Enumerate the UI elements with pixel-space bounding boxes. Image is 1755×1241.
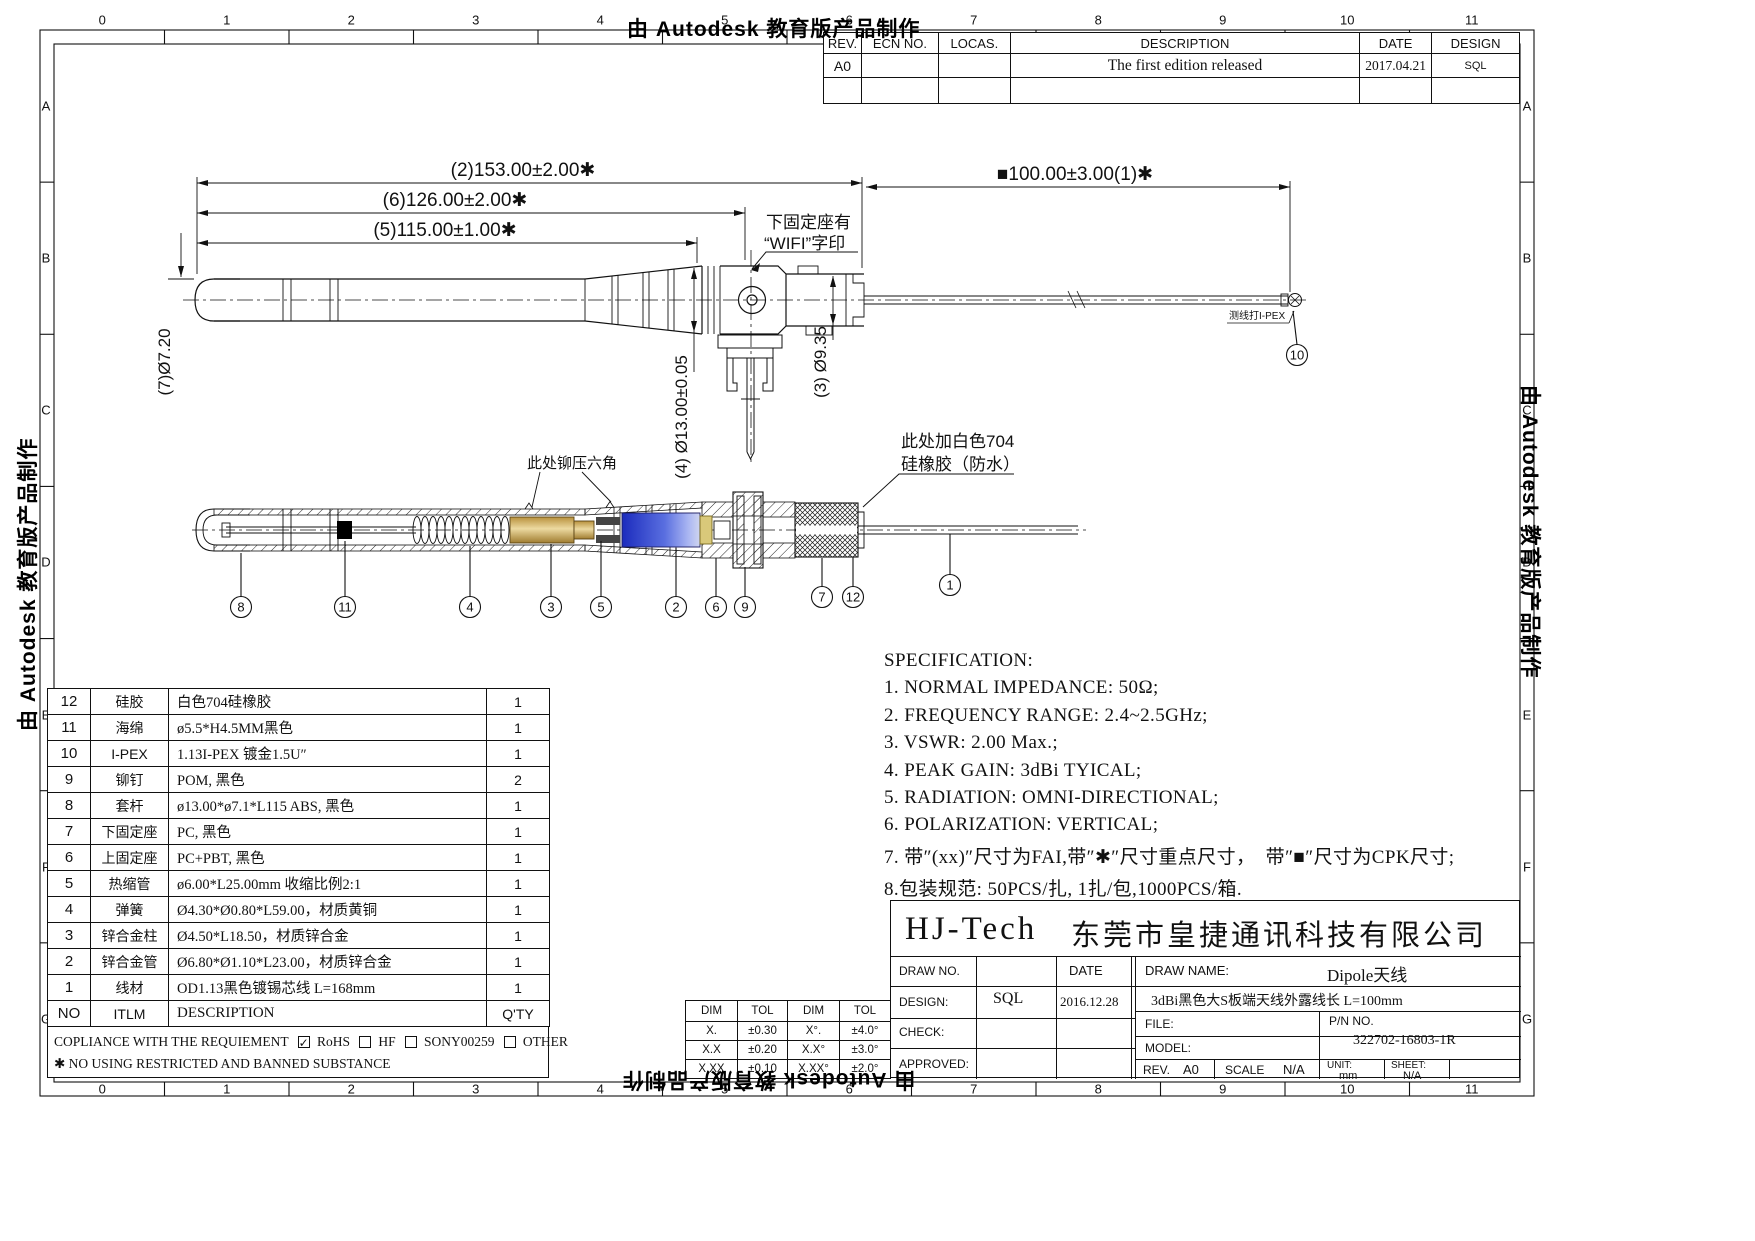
autodesk-watermark-top: 由 Autodesk 教育版产品制作: [627, 13, 920, 43]
unit-value: mm: [1339, 1070, 1357, 1082]
bom-no: 8: [48, 793, 91, 819]
part-balloons: 811435269712110: [231, 311, 1308, 618]
date-label: DATE: [1069, 963, 1103, 978]
compliance-option-label: HF: [375, 1034, 396, 1049]
tolerance-cell: ±4.0°: [840, 1022, 891, 1041]
bom-qty: 1: [487, 715, 550, 741]
draw-name-label: DRAW NAME:: [1145, 963, 1229, 978]
rev-value: A0: [1183, 1062, 1199, 1077]
design-date: 2016.12.28: [1060, 994, 1119, 1010]
bom-row: 3锌合金柱Ø4.50*L18.50，材质锌合金1: [48, 923, 550, 949]
revision-header-cell: DATE: [1360, 33, 1432, 54]
dimension-annotations: (2)153.00±2.00✱ (6)126.00±2.00✱ (5)115.0…: [155, 160, 1290, 479]
bom-description: 白色704硅橡胶: [169, 689, 487, 715]
zinc-tube-section: [622, 513, 700, 547]
bom-description: PC+PBT, 黑色: [169, 845, 487, 871]
grid-column-label: 8: [1095, 1082, 1102, 1097]
grid-column-label: 10: [1340, 1082, 1354, 1097]
draw-name-sub: 3dBi黑色大S板端天线外露线长 L=100mm: [1151, 990, 1403, 1010]
bom-no: 2: [48, 949, 91, 975]
bom-qty: 1: [487, 949, 550, 975]
bom-item: 热缩管: [91, 871, 169, 897]
bom-item: 锌合金柱: [91, 923, 169, 949]
tolerance-header-cell: DIM: [686, 1001, 738, 1022]
revision-row-empty: [824, 78, 1520, 104]
bom-description: ø5.5*H4.5MM黑色: [169, 715, 487, 741]
bom-item: 硅胶: [91, 689, 169, 715]
spec-line: 2. FREQUENCY RANGE: 2.4~2.5GHz;: [884, 705, 1454, 727]
grid-column-label: 2: [348, 1082, 355, 1097]
spec-line: 7. 带″(xx)″尺寸为FAI,带″✱″尺寸重点尺寸， 带″■″尺寸为CPK尺…: [884, 842, 1454, 869]
tolerance-cell: X°.: [788, 1022, 840, 1041]
bom-qty: 2: [487, 767, 550, 793]
compliance-note: ✱ NO USING RESTRICTED AND BANNED SUBSTAN…: [54, 1054, 548, 1076]
bom-row: 7下固定座PC, 黑色1: [48, 819, 550, 845]
spec-line: 6. POLARIZATION: VERTICAL;: [884, 814, 1454, 836]
bom-no: 5: [48, 871, 91, 897]
scale-value: N/A: [1283, 1062, 1305, 1077]
part-balloon-number: 12: [846, 590, 860, 605]
tolerance-cell: X.X: [686, 1041, 738, 1060]
dim-9-35-label: (3) Ø9.35: [811, 326, 830, 398]
scale-label: SCALE: [1225, 1063, 1264, 1077]
grid-column-label: 7: [970, 1082, 977, 1097]
part-balloon-number: 6: [712, 600, 719, 615]
bom-row: 2锌合金管Ø6.80*Ø1.10*L23.00，材质锌合金1: [48, 949, 550, 975]
compliance-checkbox-sony00259: [405, 1036, 417, 1048]
dim-153-label: (2)153.00±2.00✱: [451, 160, 596, 181]
bom-row: 4弹簧Ø4.30*Ø0.80*L59.00，材质黄铜1: [48, 897, 550, 923]
compliance-checkbox-other: [504, 1036, 516, 1048]
part-balloon-number: 5: [597, 600, 604, 615]
title-block: HJ-Tech 东莞市皇捷通讯科技有限公司 DRAW NO. DATE DESI…: [890, 900, 1520, 1078]
grid-column-label: 2: [348, 13, 355, 28]
grid-row-label: G: [1522, 1011, 1532, 1026]
check-label: CHECK:: [899, 1025, 944, 1039]
rev-label: REV.: [1143, 1063, 1170, 1077]
dim-115-label: (5)115.00±1.00✱: [373, 220, 516, 241]
compliance-line: COPLIANCE WITH THE REQUIEMENT RoHS HF SO…: [54, 1032, 548, 1054]
spec-line: 4. PEAK GAIN: 3dBi TYICAL;: [884, 760, 1454, 782]
grid-column-label: 7: [970, 13, 977, 28]
part-balloon-number: 8: [237, 600, 244, 615]
bom-qty: 1: [487, 793, 550, 819]
bom-description: 1.13I-PEX 镀金1.5U″: [169, 741, 487, 767]
spec-line: 1. NORMAL IMPEDANCE: 50Ω;: [884, 677, 1454, 699]
part-balloon-number: 2: [672, 600, 679, 615]
tolerance-header-cell: TOL: [738, 1001, 788, 1022]
bom-description: Ø6.80*Ø1.10*L23.00，材质锌合金: [169, 949, 487, 975]
part-balloon-number: 7: [818, 590, 825, 605]
autodesk-watermark-right: 由 Autodesk 教育版产品制作: [1516, 385, 1546, 678]
autodesk-watermark-left: 由 Autodesk 教育版产品制作: [12, 438, 42, 731]
design-label: DESIGN:: [899, 995, 948, 1009]
tolerance-header-cell: TOL: [840, 1001, 891, 1022]
bom-qty: 1: [487, 923, 550, 949]
bom-item: 线材: [91, 975, 169, 1001]
grid-column-label: 1: [223, 13, 230, 28]
rivet-section: [754, 496, 761, 564]
bom-qty: 1: [487, 871, 550, 897]
revision-cell: [861, 54, 938, 78]
bom-no: 4: [48, 897, 91, 923]
grid-row-label: C: [41, 403, 50, 418]
revision-cell: [938, 54, 1010, 78]
drawing-sheet: (2)153.00±2.00✱ (6)126.00±2.00✱ (5)115.0…: [0, 0, 1755, 1241]
part-balloon-number: 10: [1290, 348, 1304, 363]
compliance-prefix: COPLIANCE WITH THE REQUIEMENT: [54, 1034, 289, 1049]
sheet-value: N/A: [1403, 1070, 1421, 1082]
dim-7-20-label: (7)Ø7.20: [155, 328, 174, 395]
tolerance-cell: X.: [686, 1022, 738, 1041]
bom-no: 7: [48, 819, 91, 845]
bom-description: Ø4.30*Ø0.80*L59.00，材质黄铜: [169, 897, 487, 923]
bom-no: 10: [48, 741, 91, 767]
grid-column-label: 4: [597, 13, 604, 28]
compliance-checkbox-rohs: [298, 1036, 310, 1048]
revision-row: A0The first edition released2017.04.21SQ…: [824, 54, 1520, 78]
tolerance-cell: ±0.30: [738, 1022, 788, 1041]
specification-title: SPECIFICATION:: [884, 650, 1454, 672]
dim-126-label: (6)126.00±2.00✱: [383, 190, 528, 211]
bom-item: I-PEX: [91, 741, 169, 767]
revision-header-cell: DESIGN: [1432, 33, 1520, 54]
mount-clip: [718, 335, 782, 348]
spec-line: 3. VSWR: 2.00 Max.;: [884, 732, 1454, 754]
bom-item: 锌合金管: [91, 949, 169, 975]
bom-qty: 1: [487, 741, 550, 767]
bom-header-row: NOITLMDESCRIPTIONQ'TY: [48, 1001, 550, 1027]
bom-qty: 1: [487, 819, 550, 845]
bom-item: 下固定座: [91, 819, 169, 845]
bom-item: 弹簧: [91, 897, 169, 923]
bom-row: 12硅胶白色704硅橡胶1: [48, 689, 550, 715]
bom-row: 8套杆ø13.00*ø7.1*L115 ABS, 黑色1: [48, 793, 550, 819]
grid-row-label: A: [1523, 99, 1532, 114]
grid-column-label: 1: [223, 1082, 230, 1097]
compliance-checkbox-hf: [359, 1036, 371, 1048]
bom-no: 9: [48, 767, 91, 793]
grid-column-label: 10: [1340, 13, 1354, 28]
grid-column-label: 9: [1219, 13, 1226, 28]
grid-column-label: 0: [99, 1082, 106, 1097]
bom-row: 9铆钉POM, 黑色2: [48, 767, 550, 793]
part-balloon-number: 3: [547, 600, 554, 615]
company-logo: HJ-Tech: [905, 911, 1037, 948]
hex-crimp-note: 此处铆压六角: [527, 455, 617, 472]
bom-description: Ø4.50*L18.50，材质锌合金: [169, 923, 487, 949]
file-label: FILE:: [1145, 1017, 1174, 1031]
spec-line: 5. RADIATION: OMNI-DIRECTIONAL;: [884, 787, 1454, 809]
grid-column-label: 3: [472, 1082, 479, 1097]
part-balloon-number: 1: [946, 578, 953, 593]
bom-row: 1线材OD1.13黑色镀锡芯线 L=168mm1: [48, 975, 550, 1001]
bom-description: OD1.13黑色镀锡芯线 L=168mm: [169, 975, 487, 1001]
grid-row-label: D: [41, 555, 50, 570]
design-value: SQL: [993, 990, 1023, 1008]
bom-description: ø6.00*L25.00mm 收缩比例2:1: [169, 871, 487, 897]
revision-cell: 2017.04.21: [1360, 54, 1432, 78]
part-balloon-number: 9: [741, 600, 748, 615]
grid-column-label: 9: [1219, 1082, 1226, 1097]
tolerance-row: X.X±0.20X.X°±3.0°: [686, 1041, 891, 1060]
bom-row: 6上固定座PC+PBT, 黑色1: [48, 845, 550, 871]
tolerance-row: X.±0.30X°.±4.0°: [686, 1022, 891, 1041]
bom-no: 6: [48, 845, 91, 871]
part-balloon-number: 11: [338, 600, 352, 615]
bom-item: 上固定座: [91, 845, 169, 871]
antenna-side-view: [183, 250, 1307, 466]
silicone-note-line1: 此处加白色704: [901, 432, 1014, 451]
revision-cell: The first edition released: [1010, 54, 1359, 78]
grid-column-label: 8: [1095, 13, 1102, 28]
bom-no: 3: [48, 923, 91, 949]
bom-qty: 1: [487, 845, 550, 871]
pn-label: P/N NO.: [1329, 1014, 1374, 1028]
grid-row-label: E: [1523, 707, 1532, 722]
bom-item: 套杆: [91, 793, 169, 819]
bom-description: POM, 黑色: [169, 767, 487, 793]
drawing-notes: 下固定座有 “WIFI”字印 此处加白色704 硅橡胶（防水） 此处铆压六角 测…: [527, 213, 1294, 507]
grid-row-label: B: [42, 251, 51, 266]
part-balloon-number: 4: [466, 600, 473, 615]
specification-block: SPECIFICATION: 1. NORMAL IMPEDANCE: 50Ω;…: [884, 650, 1454, 907]
bom-row: 5热缩管ø6.00*L25.00mm 收缩比例2:11: [48, 871, 550, 897]
tolerance-header-cell: DIM: [788, 1001, 840, 1022]
draw-name-value: Dipole天线: [1327, 961, 1407, 986]
grid-column-label: 0: [99, 13, 106, 28]
dim-13-label: (4) Ø13.00±0.05: [672, 355, 691, 479]
revision-cell: SQL: [1432, 54, 1520, 78]
bom-qty: 1: [487, 897, 550, 923]
revision-header-cell: LOCAS.: [938, 33, 1010, 54]
bom-no: 1: [48, 975, 91, 1001]
tolerance-cell: ±3.0°: [840, 1041, 891, 1060]
revision-header-cell: DESCRIPTION: [1010, 33, 1359, 54]
grid-column-label: 11: [1465, 1082, 1479, 1097]
grid-row-label: B: [1523, 251, 1532, 266]
model-label: MODEL:: [1145, 1041, 1191, 1055]
revision-cell: A0: [824, 54, 862, 78]
bom-item: 铆钉: [91, 767, 169, 793]
wifi-note-line1: 下固定座有: [766, 213, 851, 232]
bom-no: 11: [48, 715, 91, 741]
bom-qty: 1: [487, 689, 550, 715]
pn-value: 322702-16803-1R: [1353, 1033, 1456, 1049]
bom-description: ø13.00*ø7.1*L115 ABS, 黑色: [169, 793, 487, 819]
wifi-note-line2: “WIFI”字印: [764, 234, 845, 253]
company-name: 东莞市皇捷通讯科技有限公司: [1071, 912, 1487, 954]
silicone-note-line2: 硅橡胶（防水）: [901, 455, 1020, 474]
revision-table: REV.ECN NO.LOCAS.DESCRIPTIONDATEDESIGNA0…: [823, 32, 1520, 104]
zinc-column-section: [510, 517, 574, 543]
compliance-option-label: SONY00259: [421, 1034, 495, 1049]
bom-row: 11海绵ø5.5*H4.5MM黑色1: [48, 715, 550, 741]
bom-item: 海绵: [91, 715, 169, 741]
bom-description: PC, 黑色: [169, 819, 487, 845]
grid-row-label: F: [1523, 859, 1531, 874]
tolerance-cell: ±0.20: [738, 1041, 788, 1060]
grid-column-label: 4: [597, 1082, 604, 1097]
sponge-section: [337, 521, 352, 539]
bom-row: 10I-PEX1.13I-PEX 镀金1.5U″1: [48, 741, 550, 767]
hex-crimp-mark: [606, 502, 614, 508]
bom-no: 12: [48, 689, 91, 715]
compliance-option-label: RoHS: [314, 1034, 350, 1049]
draw-no-label: DRAW NO.: [899, 964, 960, 978]
bom-qty: 1: [487, 975, 550, 1001]
compliance-box: COPLIANCE WITH THE REQUIEMENT RoHS HF SO…: [47, 1026, 549, 1078]
grid-column-label: 11: [1465, 13, 1479, 28]
autodesk-watermark-bottom: 由 Autodesk 教育版产品制作: [622, 1066, 915, 1096]
compliance-option-label: OTHER: [520, 1034, 568, 1049]
tolerance-cell: X.X°: [788, 1041, 840, 1060]
grid-column-label: 3: [472, 13, 479, 28]
bom-table: 12硅胶白色704硅橡胶111海绵ø5.5*H4.5MM黑色110I-PEX1.…: [47, 688, 550, 1027]
grid-row-label: A: [42, 99, 51, 114]
spec-line: 8.包装规范: 50PCS/扎, 1扎/包,1000PCS/箱.: [884, 874, 1454, 901]
ipex-note: 测线打I-PEX: [1229, 309, 1285, 322]
dim-100-label: ■100.00±3.00(1)✱: [997, 164, 1153, 185]
antenna-section-view: [192, 492, 1086, 568]
rivet-section: [737, 496, 744, 564]
